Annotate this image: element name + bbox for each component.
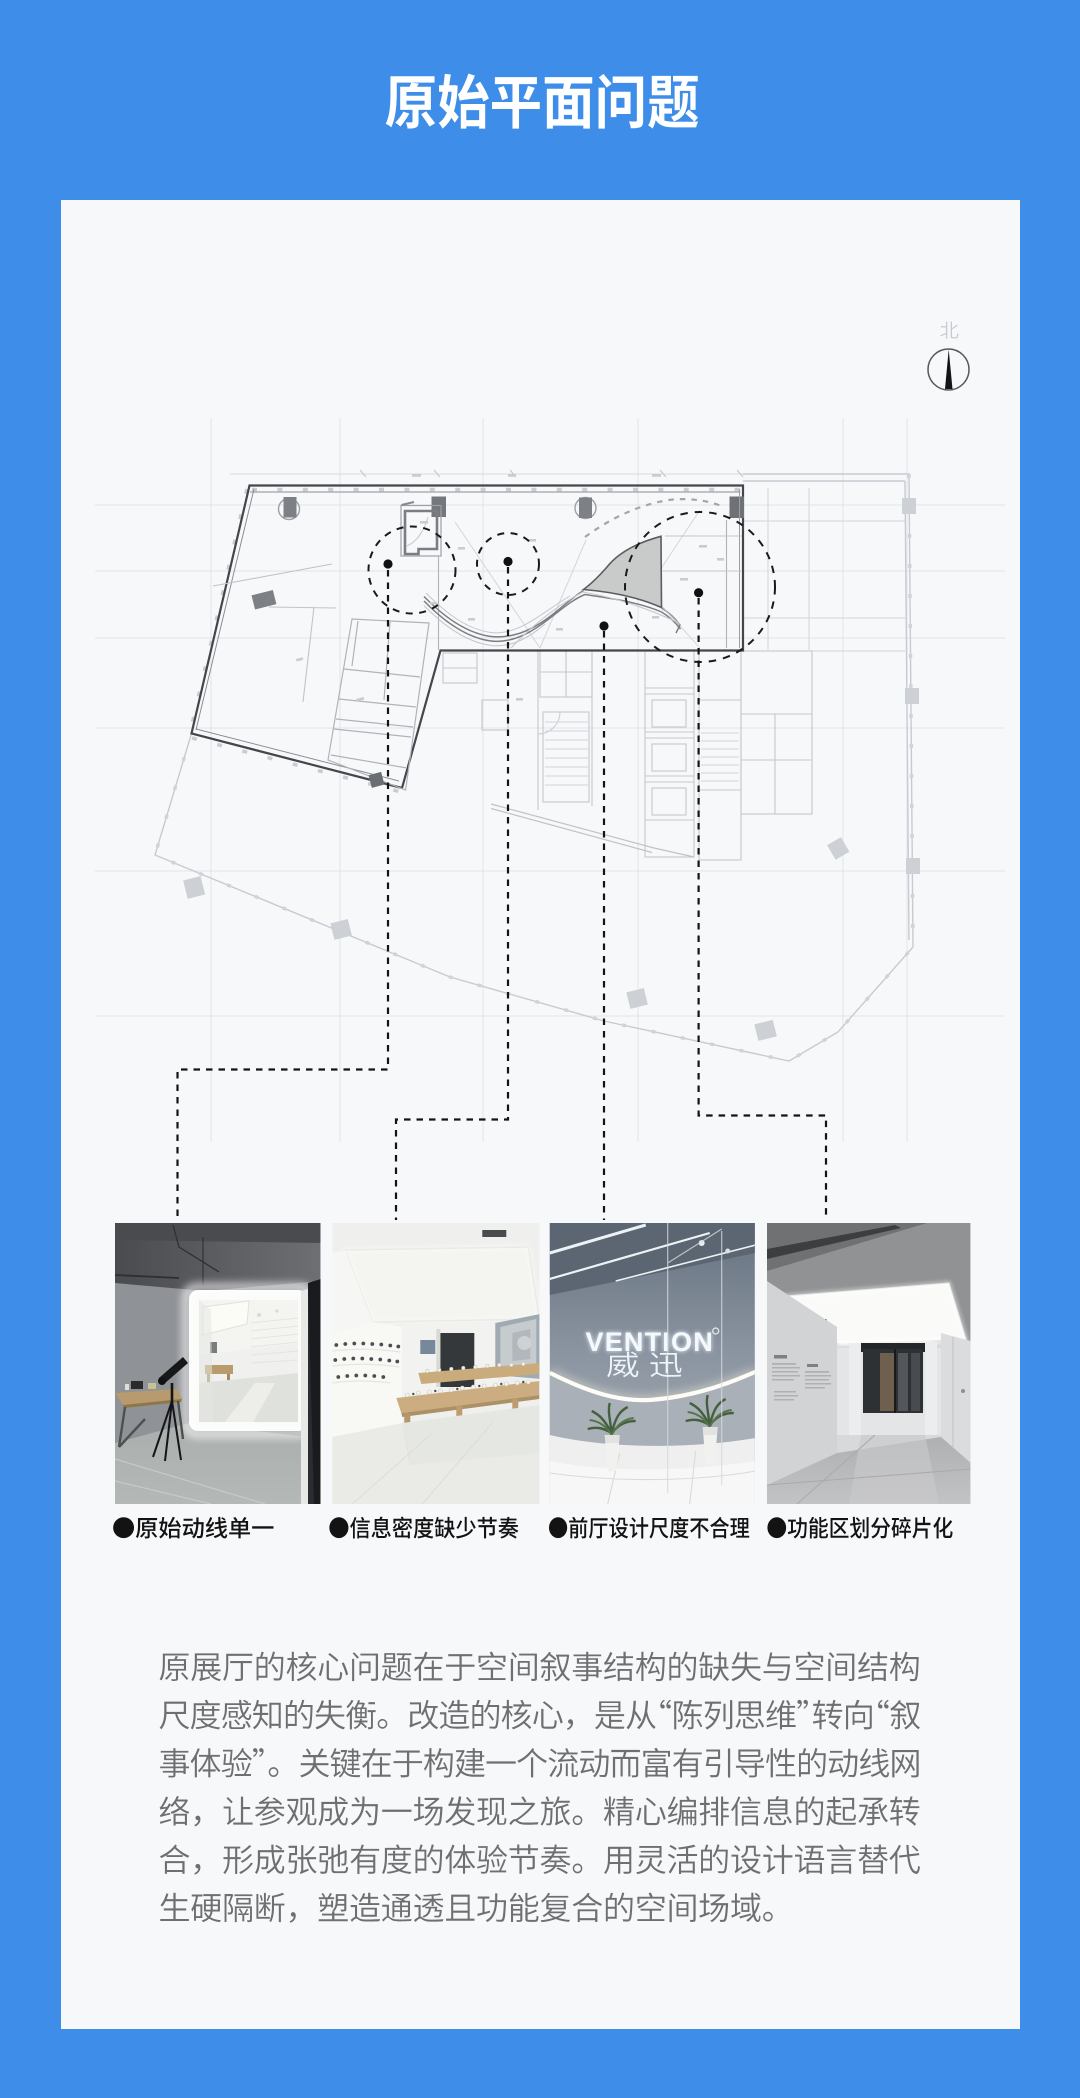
svg-text:VENTION: VENTION [585, 1327, 713, 1357]
